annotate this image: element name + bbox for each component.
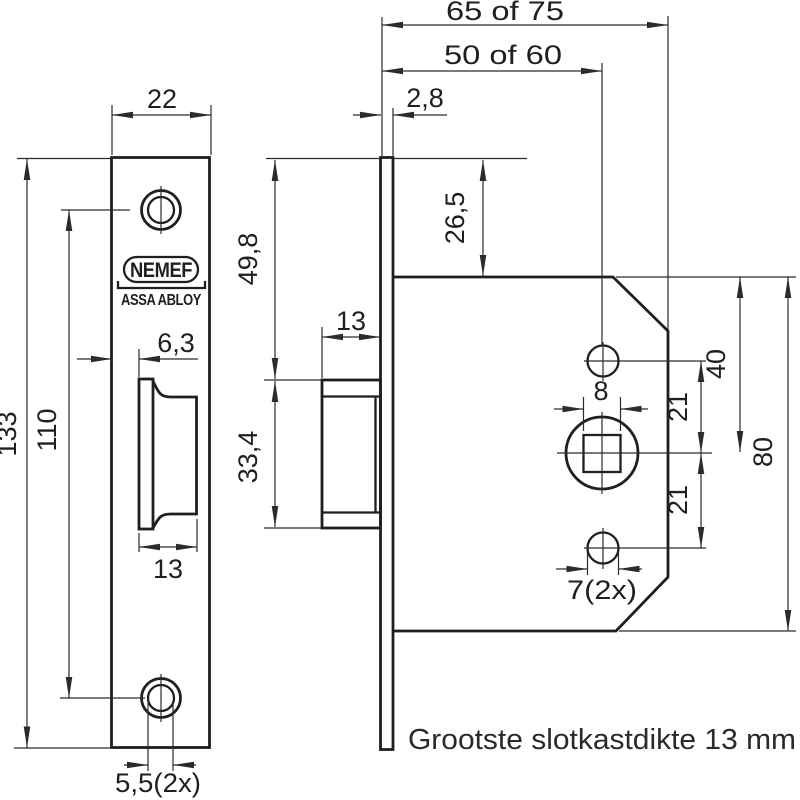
dim-latch-height: 33,4 (233, 431, 263, 484)
technical-drawing-mortise-lock: NEMEF ASSA ABLOY 22 133 110 6,3 (0, 0, 800, 800)
dim-spindle-to-top-hole: 21 (663, 392, 693, 422)
dim-screw-hole-dia: 5,5(2x) (115, 768, 201, 798)
drawing-svg: NEMEF ASSA ABLOY 22 133 110 6,3 (0, 0, 800, 800)
dim-faceplate-width: 22 (147, 84, 177, 114)
dim-fix-hole-dia: 7(2x) (567, 575, 637, 605)
dim-case-height: 80 (748, 437, 778, 467)
dim-latch-protrusion: 13 (336, 306, 366, 336)
dim-backset: 50 of 60 (444, 40, 562, 70)
dim-faceplate-thickness: 2,8 (406, 83, 444, 113)
faceplate-side-strip (381, 158, 394, 750)
latch-front-strip (139, 379, 153, 529)
drawing-note: Grootste slotkastdikte 13 mm (408, 724, 796, 756)
dim-case-top-to-spindle: 40 (701, 349, 731, 379)
faceplate-outline (112, 158, 210, 748)
lock-case-side-view (322, 158, 712, 750)
dim-top-to-latch: 49,8 (233, 233, 263, 286)
dim-spindle-square: 8 (593, 376, 608, 406)
dim-latch-inset: 6,3 (157, 328, 195, 358)
dim-latch-width: 13 (153, 554, 183, 584)
nemef-logo-text: NEMEF (130, 259, 193, 282)
lock-case-dimensions: 65 of 75 50 of 60 2,8 49,8 33,4 13 26,5 (233, 0, 796, 631)
dim-top-to-case: 26,5 (440, 192, 470, 245)
dim-spindle-to-bottom-hole: 21 (663, 485, 693, 515)
dim-total-depth: 65 of 75 (446, 0, 564, 26)
dim-screw-spacing: 110 (32, 408, 62, 451)
latch-side-outline (322, 380, 381, 528)
assa-abloy-text: ASSA ABLOY (121, 292, 202, 309)
dim-faceplate-height: 133 (0, 411, 22, 456)
latch-front-body (153, 381, 197, 528)
faceplate-front-view: NEMEF ASSA ABLOY (60, 158, 210, 748)
